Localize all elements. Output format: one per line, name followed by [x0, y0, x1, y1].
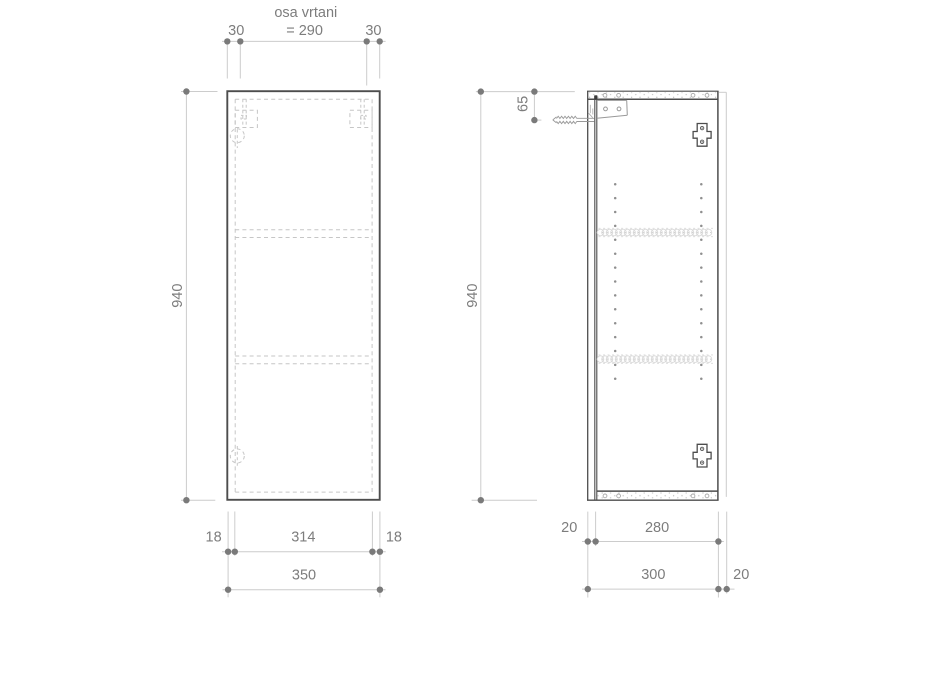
svg-text:940: 940 [465, 284, 481, 308]
svg-text:18: 18 [206, 529, 222, 545]
svg-text:20: 20 [733, 567, 749, 583]
svg-text:30: 30 [365, 23, 381, 39]
svg-text:18: 18 [386, 529, 402, 545]
svg-text:20: 20 [561, 520, 577, 536]
svg-text:osa vrtani: osa vrtani [274, 5, 337, 21]
svg-text:30: 30 [228, 23, 244, 39]
svg-text:314: 314 [291, 529, 315, 545]
svg-text:350: 350 [292, 567, 316, 583]
svg-text:65: 65 [516, 96, 532, 112]
svg-text:300: 300 [641, 567, 665, 583]
svg-text:280: 280 [645, 520, 669, 536]
svg-text:= 290: = 290 [286, 23, 323, 39]
svg-text:940: 940 [170, 284, 186, 308]
